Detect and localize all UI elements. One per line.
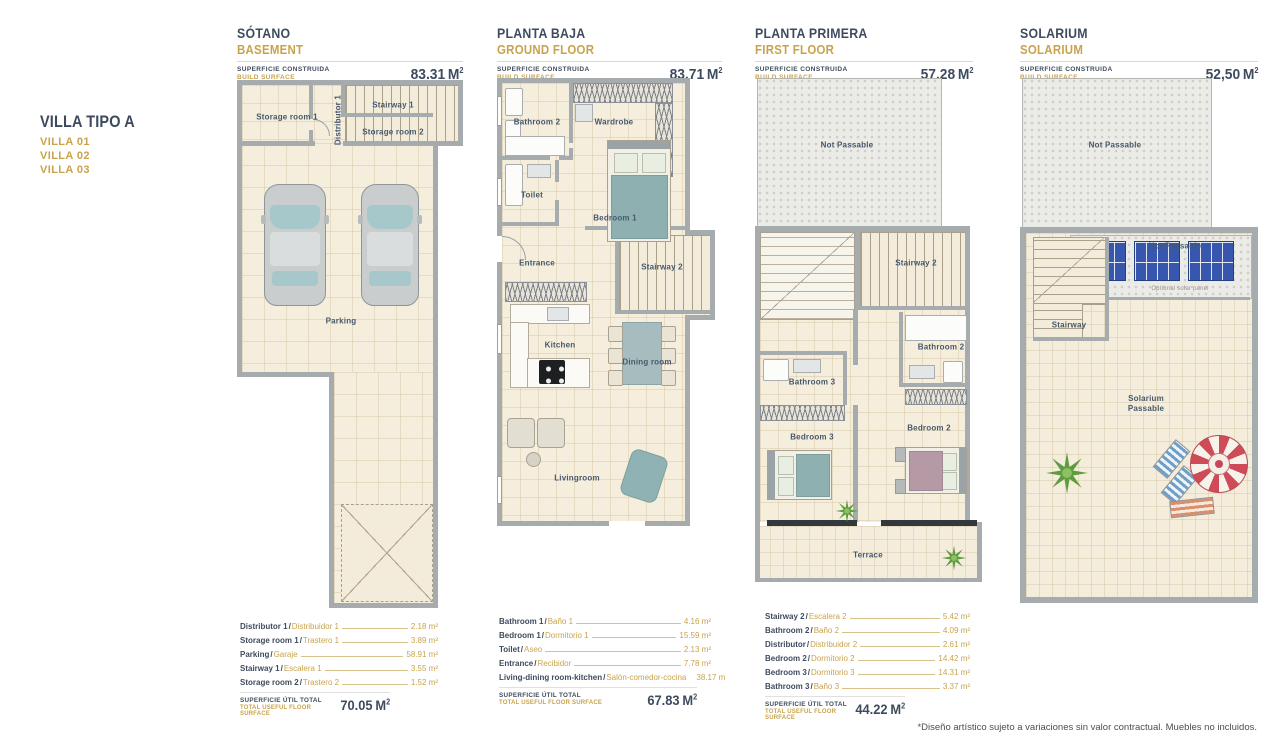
legend-sep: / <box>521 645 523 654</box>
legend-value: 15.59 m² <box>679 631 711 640</box>
wall <box>555 160 559 182</box>
wall <box>843 355 847 405</box>
legend-row: Bedroom 2/Dormitorio 214.42 m² <box>765 654 970 663</box>
wardrobe-hatch <box>573 83 673 103</box>
legend-row: Entrance/Recibidor7.78 m² <box>499 659 711 668</box>
parasol-icon <box>1190 435 1248 493</box>
wall <box>458 80 463 146</box>
wall <box>559 156 573 160</box>
legend-sep: / <box>544 617 546 626</box>
total-label-en: TOTAL USEFUL FLOOR SURFACE <box>499 700 602 706</box>
legend-en: Parking <box>240 650 269 659</box>
stair-void <box>760 232 855 320</box>
legend-es: Trastero 2 <box>303 678 339 687</box>
total-label-en: TOTAL USEFUL FLOOR SURFACE <box>765 709 851 721</box>
room-label-dining: Dining room <box>622 358 671 367</box>
room-label-parking: Parking <box>326 317 357 326</box>
surface-label-es: SUPERFICIE CONSTRUIDA <box>497 66 590 73</box>
villa-title-block: VILLA TIPO A VILLA 01 VILLA 02 VILLA 03 <box>40 112 152 177</box>
dining-table <box>622 322 662 385</box>
legend-en: Bedroom 1 <box>499 631 541 640</box>
wall <box>760 351 847 355</box>
floorplan-sheet: VILLA TIPO A VILLA 01 VILLA 02 VILLA 03 … <box>0 0 1280 742</box>
legend-sep: / <box>270 650 272 659</box>
bathtub <box>905 315 967 341</box>
legend-row: Bathroom 1/Baño 14.16 m² <box>499 617 711 626</box>
legend-en: Distributor 1 <box>240 622 288 631</box>
legend-es: Dormitorio 2 <box>811 654 855 663</box>
legend-sep: / <box>810 682 812 691</box>
wall <box>977 522 982 582</box>
stairs <box>619 235 711 311</box>
wall <box>710 230 715 320</box>
plan-title: PLANTA PRIMERA <box>755 25 947 41</box>
plan-subtitle: BASEMENT <box>237 42 436 57</box>
car-windshield <box>367 205 413 229</box>
legend-value: 5.42 m² <box>943 612 970 621</box>
wardrobe-hatch <box>760 405 845 421</box>
divider <box>237 61 463 62</box>
legend-en: Bedroom 3 <box>765 668 807 677</box>
plan-title: PLANTA BAJA <box>497 25 695 41</box>
legend-row: Toilet/Aseo2.13 m² <box>499 645 711 654</box>
legend-row: Parking/Garaje58.91 m² <box>240 650 438 659</box>
legend-en: Bedroom 2 <box>765 654 807 663</box>
shower-tray <box>763 359 789 381</box>
wall <box>497 521 690 526</box>
first-floor-drawing: Not Passable Stairway 2 Bathroom 2 Bathr… <box>755 75 985 590</box>
plan-header: PLANTA BAJA GROUND FLOOR SUPERFICIE CONS… <box>497 25 722 83</box>
plan-first-floor: PLANTA PRIMERA FIRST FLOOR SUPERFICIE CO… <box>755 25 985 725</box>
legend-sep: / <box>281 664 283 673</box>
plan-subtitle: GROUND FLOOR <box>497 42 695 57</box>
legend-sep: / <box>300 636 302 645</box>
legend-value: 3.89 m² <box>411 636 438 645</box>
leader-line <box>342 642 408 643</box>
legend-sep: / <box>300 678 302 687</box>
first-floor-legend: Stairway 2/Escalera 25.42 m² Bathroom 2/… <box>765 612 970 721</box>
villa-02-label: VILLA 02 <box>40 149 152 163</box>
legend-en: Bathroom 3 <box>765 682 809 691</box>
page-title: VILLA TIPO A <box>40 112 135 132</box>
total-label-en: TOTAL USEFUL FLOOR SURFACE <box>240 705 336 717</box>
leader-line <box>342 684 408 685</box>
room-label-wardrobe: Wardrobe <box>595 118 634 127</box>
not-passable-roof <box>757 78 942 228</box>
total-label-es: SUPERFICIE ÚTIL TOTAL <box>240 697 336 704</box>
wall <box>615 310 715 314</box>
closet-hatch <box>505 282 587 302</box>
legend-row: Stairway 2/Escalera 25.42 m² <box>765 612 970 621</box>
room-label-toilet: Toilet <box>521 191 543 200</box>
window <box>497 96 502 126</box>
total-value: 44.22M2 <box>855 701 905 717</box>
wall <box>329 372 334 608</box>
legend-en: Stairway 1 <box>240 664 280 673</box>
wall <box>685 315 690 526</box>
pillow <box>778 477 794 496</box>
headboard <box>768 451 775 499</box>
legend-value: 1.52 m² <box>411 678 438 687</box>
bed <box>607 140 671 242</box>
room-label-bathroom2: Bathroom 2 <box>514 118 560 127</box>
room-label-living: Livingroom <box>554 474 600 483</box>
toilet-wc <box>943 361 963 383</box>
legend-sep: / <box>806 612 808 621</box>
leader-line <box>592 637 677 638</box>
legend-es: Recibidor <box>537 659 571 668</box>
legend-value: 2.13 m² <box>684 645 711 654</box>
wall <box>899 383 969 387</box>
wall <box>502 222 559 226</box>
car-rear-glass <box>272 271 318 286</box>
wall <box>497 78 690 83</box>
legend-value: 3.37 m² <box>943 682 970 691</box>
wardrobe-hatch <box>905 389 967 405</box>
wall <box>569 148 573 156</box>
plan-basement: SÓTANO BASEMENT SUPERFICIE CONSTRUIDA BU… <box>237 25 463 725</box>
bathroom-sink <box>793 359 821 373</box>
plan-subtitle: FIRST FLOOR <box>755 42 947 57</box>
headboard <box>608 141 670 149</box>
leader-line <box>858 660 936 661</box>
car-rear-glass <box>369 271 411 286</box>
wall <box>615 230 619 314</box>
solar-panel-caption: Optional solar panel <box>1151 286 1208 292</box>
terrace-door-opening <box>609 521 645 526</box>
wall <box>755 226 970 232</box>
legend-en: Storage room 1 <box>240 636 299 645</box>
legend-es: Baño 1 <box>548 617 573 626</box>
room-label-storage1: Storage room 1 <box>256 113 317 122</box>
legend-value: 2.61 m² <box>943 640 970 649</box>
car-mirror <box>417 215 422 224</box>
legend-sep: / <box>289 622 291 631</box>
pillow <box>942 472 957 490</box>
legend-en: Storage room 2 <box>240 678 299 687</box>
legend-sep: / <box>807 640 809 649</box>
legend-sep: / <box>808 654 810 663</box>
car <box>361 184 419 306</box>
legend-es: Salón-comedor-cocina <box>606 673 686 682</box>
wall <box>855 232 860 306</box>
palm-plant-icon <box>835 499 859 523</box>
leader-line <box>325 670 408 671</box>
legend-row: Storage room 1/Trastero 13.89 m² <box>240 636 438 645</box>
wall <box>502 156 550 160</box>
legend-row: Bathroom 3/Baño 33.37 m² <box>765 682 970 691</box>
wall <box>685 78 690 235</box>
leader-line <box>574 665 681 666</box>
legend-en: Entrance <box>499 659 533 668</box>
basement-legend: Distributor 1/Distribuidor 12.18 m² Stor… <box>240 622 438 717</box>
wall <box>329 603 434 608</box>
legend-row: Distributor 1/Distribuidor 12.18 m² <box>240 622 438 631</box>
total-labels: SUPERFICIE ÚTIL TOTAL TOTAL USEFUL FLOOR… <box>499 692 602 706</box>
legend-value: 7.78 m² <box>684 659 711 668</box>
plan-title: SÓTANO <box>237 25 436 41</box>
chair <box>661 370 676 386</box>
room-label-distributor1: Distributor 1 <box>334 95 343 145</box>
legend-row: Storage room 2/Trastero 21.52 m² <box>240 678 438 687</box>
wall <box>1105 237 1109 337</box>
wall <box>569 83 573 143</box>
leader-line <box>545 651 681 652</box>
window <box>497 178 502 206</box>
car-mirror <box>261 215 266 224</box>
palm-plant-icon <box>941 545 967 571</box>
wall <box>237 141 315 146</box>
villa-03-label: VILLA 03 <box>40 163 152 177</box>
room-label-bathroom3: Bathroom 3 <box>789 378 835 387</box>
total-label-es: SUPERFICIE ÚTIL TOTAL <box>499 692 602 699</box>
legend-en: Living-dining room-kitchen <box>499 673 602 682</box>
wall <box>855 306 970 310</box>
not-passable-roof <box>1022 78 1212 228</box>
ramp-hatch <box>341 504 433 602</box>
total-labels: SUPERFICIE ÚTIL TOTAL TOTAL USEFUL FLOOR… <box>765 701 851 721</box>
toilet-sink <box>527 164 551 178</box>
legend-es: Aseo <box>524 645 542 654</box>
car <box>264 184 326 306</box>
wall <box>853 310 858 365</box>
wall <box>1020 597 1258 603</box>
legend-en: Distributor <box>765 640 806 649</box>
wall <box>237 372 334 377</box>
surface-label-es: SUPERFICIE CONSTRUIDA <box>755 66 848 73</box>
ground-floor-legend: Bathroom 1/Baño 14.16 m² Bedroom 1/Dormi… <box>499 617 711 708</box>
bed <box>905 447 967 494</box>
legend-sep: / <box>534 659 536 668</box>
leader-line <box>860 646 940 647</box>
armchair <box>507 418 535 448</box>
leader-line <box>342 628 408 629</box>
car-roof <box>270 232 320 266</box>
legend-es: Escalera 1 <box>284 664 322 673</box>
total-value: 70.05M2 <box>340 697 390 713</box>
leader-line <box>850 618 940 619</box>
duvet <box>611 175 668 239</box>
solarium-drawing: Not Passable Not Passable Optional solar… <box>1020 75 1258 603</box>
car-mirror <box>324 215 329 224</box>
legend-sep: / <box>808 668 810 677</box>
plan-ground-floor: PLANTA BAJA GROUND FLOOR SUPERFICIE CONS… <box>497 25 722 725</box>
legend-total: SUPERFICIE ÚTIL TOTAL TOTAL USEFUL FLOOR… <box>499 687 697 708</box>
duvet <box>909 451 943 491</box>
plan-subtitle: SOLARIUM <box>1020 42 1229 57</box>
room-label-solarium: Solarium Passable <box>1128 394 1164 414</box>
bathroom-sink <box>505 88 523 116</box>
headboard <box>959 448 966 493</box>
room-label-entrance: Entrance <box>519 259 555 268</box>
divider <box>497 61 722 62</box>
room-label-stairway1: Stairway 1 <box>372 101 414 110</box>
legend-es: Distribuidor 2 <box>810 640 857 649</box>
leader-line <box>842 632 940 633</box>
room-label-bedroom2: Bedroom 2 <box>907 424 951 433</box>
room-label-stairway2: Stairway 2 <box>641 263 683 272</box>
legend-sep: / <box>810 626 812 635</box>
wall <box>237 80 463 85</box>
wall <box>433 141 463 146</box>
car-mirror <box>358 215 363 224</box>
legend-row: Bedroom 3/Dormitorio 314.31 m² <box>765 668 970 677</box>
bed <box>767 450 832 500</box>
car-windshield <box>270 205 320 229</box>
wall <box>343 141 433 146</box>
plan-title: SOLARIUM <box>1020 25 1229 41</box>
legend-value: 14.31 m² <box>938 668 970 677</box>
pillow <box>778 456 794 475</box>
wall <box>1020 227 1258 233</box>
window <box>497 476 502 504</box>
coffee-table <box>526 452 541 467</box>
legend-value: 4.09 m² <box>943 626 970 635</box>
stairs <box>860 232 967 308</box>
wall <box>1020 227 1026 603</box>
plan-solarium: SOLARIUM SOLARIUM SUPERFICIE CONSTRUIDA … <box>1020 25 1258 725</box>
legend-value: 2.18 m² <box>411 622 438 631</box>
legend-en: Bathroom 2 <box>765 626 809 635</box>
legend-row: Living-dining room-kitchen/Salón-comedor… <box>499 673 711 682</box>
room-label-stairway2: Stairway 2 <box>895 259 937 268</box>
wall <box>755 226 760 522</box>
duvet <box>796 454 830 497</box>
ground-floor-drawing: Bathroom 2 Wardrobe Toilet Bedroom 1 Ent… <box>497 78 722 530</box>
room-label-not-passable-top: Not Passable <box>1089 141 1142 150</box>
palm-plant-icon <box>1045 451 1089 495</box>
legend-value: 4.16 m² <box>684 617 711 626</box>
total-labels: SUPERFICIE ÚTIL TOTAL TOTAL USEFUL FLOOR… <box>240 697 336 717</box>
room-label-kitchen: Kitchen <box>545 341 576 350</box>
wall <box>497 78 502 526</box>
wall <box>433 141 438 608</box>
plan-header: SÓTANO BASEMENT SUPERFICIE CONSTRUIDA BU… <box>237 25 463 83</box>
leader-line <box>576 623 681 624</box>
room-label-bedroom3: Bedroom 3 <box>790 433 834 442</box>
shower-tray <box>505 136 565 156</box>
surface-label-es: SUPERFICIE CONSTRUIDA <box>237 66 330 73</box>
chair <box>661 326 676 342</box>
washer <box>575 104 593 122</box>
chair <box>608 370 623 386</box>
legend-en: Stairway 2 <box>765 612 805 621</box>
room-label-stairway: Stairway <box>1052 321 1087 330</box>
room-label-terrace: Terrace <box>853 551 883 560</box>
legend-row: Bathroom 2/Baño 24.09 m² <box>765 626 970 635</box>
stove <box>539 360 565 384</box>
disclaimer-note: *Diseño artístico sujeto a variaciones s… <box>917 722 1257 733</box>
stair-diagonal <box>1033 237 1105 303</box>
legend-es: Garaje <box>274 650 298 659</box>
surface-label-es: SUPERFICIE CONSTRUIDA <box>1020 66 1113 73</box>
legend-es: Baño 3 <box>814 682 839 691</box>
room-label-not-passable: Not Passable <box>1149 242 1202 251</box>
nightstand <box>895 447 906 462</box>
room-label-bathroom2: Bathroom 2 <box>918 343 964 352</box>
legend-total: SUPERFICIE ÚTIL TOTAL TOTAL USEFUL FLOOR… <box>240 692 390 717</box>
villa-01-label: VILLA 01 <box>40 135 152 149</box>
leader-line <box>858 674 936 675</box>
armchair <box>537 418 565 448</box>
wall <box>755 522 760 582</box>
legend-es: Escalera 2 <box>809 612 847 621</box>
wall <box>1252 227 1258 603</box>
legend-row: Bedroom 1/Dormitorio 115.59 m² <box>499 631 711 640</box>
kitchen-sink <box>547 307 569 321</box>
legend-en: Toilet <box>499 645 520 654</box>
leader-line <box>301 656 404 657</box>
legend-row: Stairway 1/Escalera 13.55 m² <box>240 664 438 673</box>
chair <box>608 348 623 364</box>
wall <box>237 80 242 377</box>
legend-value: 38.17 m <box>696 673 725 682</box>
legend-sep: / <box>603 673 605 682</box>
wall <box>899 312 903 387</box>
room-label-bedroom1: Bedroom 1 <box>593 214 637 223</box>
legend-en: Bathroom 1 <box>499 617 543 626</box>
bathroom-sink <box>909 365 935 379</box>
room-label-storage2: Storage room 2 <box>362 128 423 137</box>
chair <box>608 326 623 342</box>
wall <box>1033 337 1109 341</box>
legend-row: Distributor/Distribuidor 22.61 m² <box>765 640 970 649</box>
legend-es: Distribuidor 1 <box>292 622 339 631</box>
total-value: 67.83M2 <box>647 692 697 708</box>
divider <box>755 61 973 62</box>
legend-value: 3.55 m² <box>411 664 438 673</box>
legend-sep: / <box>542 631 544 640</box>
pillow <box>942 453 957 471</box>
divider <box>1020 61 1258 62</box>
leader-line <box>842 688 940 689</box>
car-roof <box>367 232 413 266</box>
bathtub <box>505 164 523 206</box>
wall <box>755 578 982 582</box>
pillow <box>614 153 638 173</box>
surface-labels: SUPERFICIE CONSTRUIDA BUILD SURFACE <box>237 66 330 81</box>
wall <box>341 113 433 117</box>
window <box>497 324 502 354</box>
legend-es: Dormitorio 1 <box>545 631 589 640</box>
legend-es: Dormitorio 3 <box>811 668 855 677</box>
pillow <box>642 153 666 173</box>
legend-es: Baño 2 <box>814 626 839 635</box>
legend-value: 58.91 m² <box>406 650 438 659</box>
basement-drawing: Storage room 1 Distributor 1 Stairway 1 … <box>237 80 463 610</box>
legend-value: 14.42 m² <box>938 654 970 663</box>
legend-es: Trastero 1 <box>303 636 339 645</box>
room-label-not-passable: Not Passable <box>821 141 874 150</box>
nightstand <box>895 479 906 494</box>
total-label-es: SUPERFICIE ÚTIL TOTAL <box>765 701 851 708</box>
legend-total: SUPERFICIE ÚTIL TOTAL TOTAL USEFUL FLOOR… <box>765 696 905 721</box>
